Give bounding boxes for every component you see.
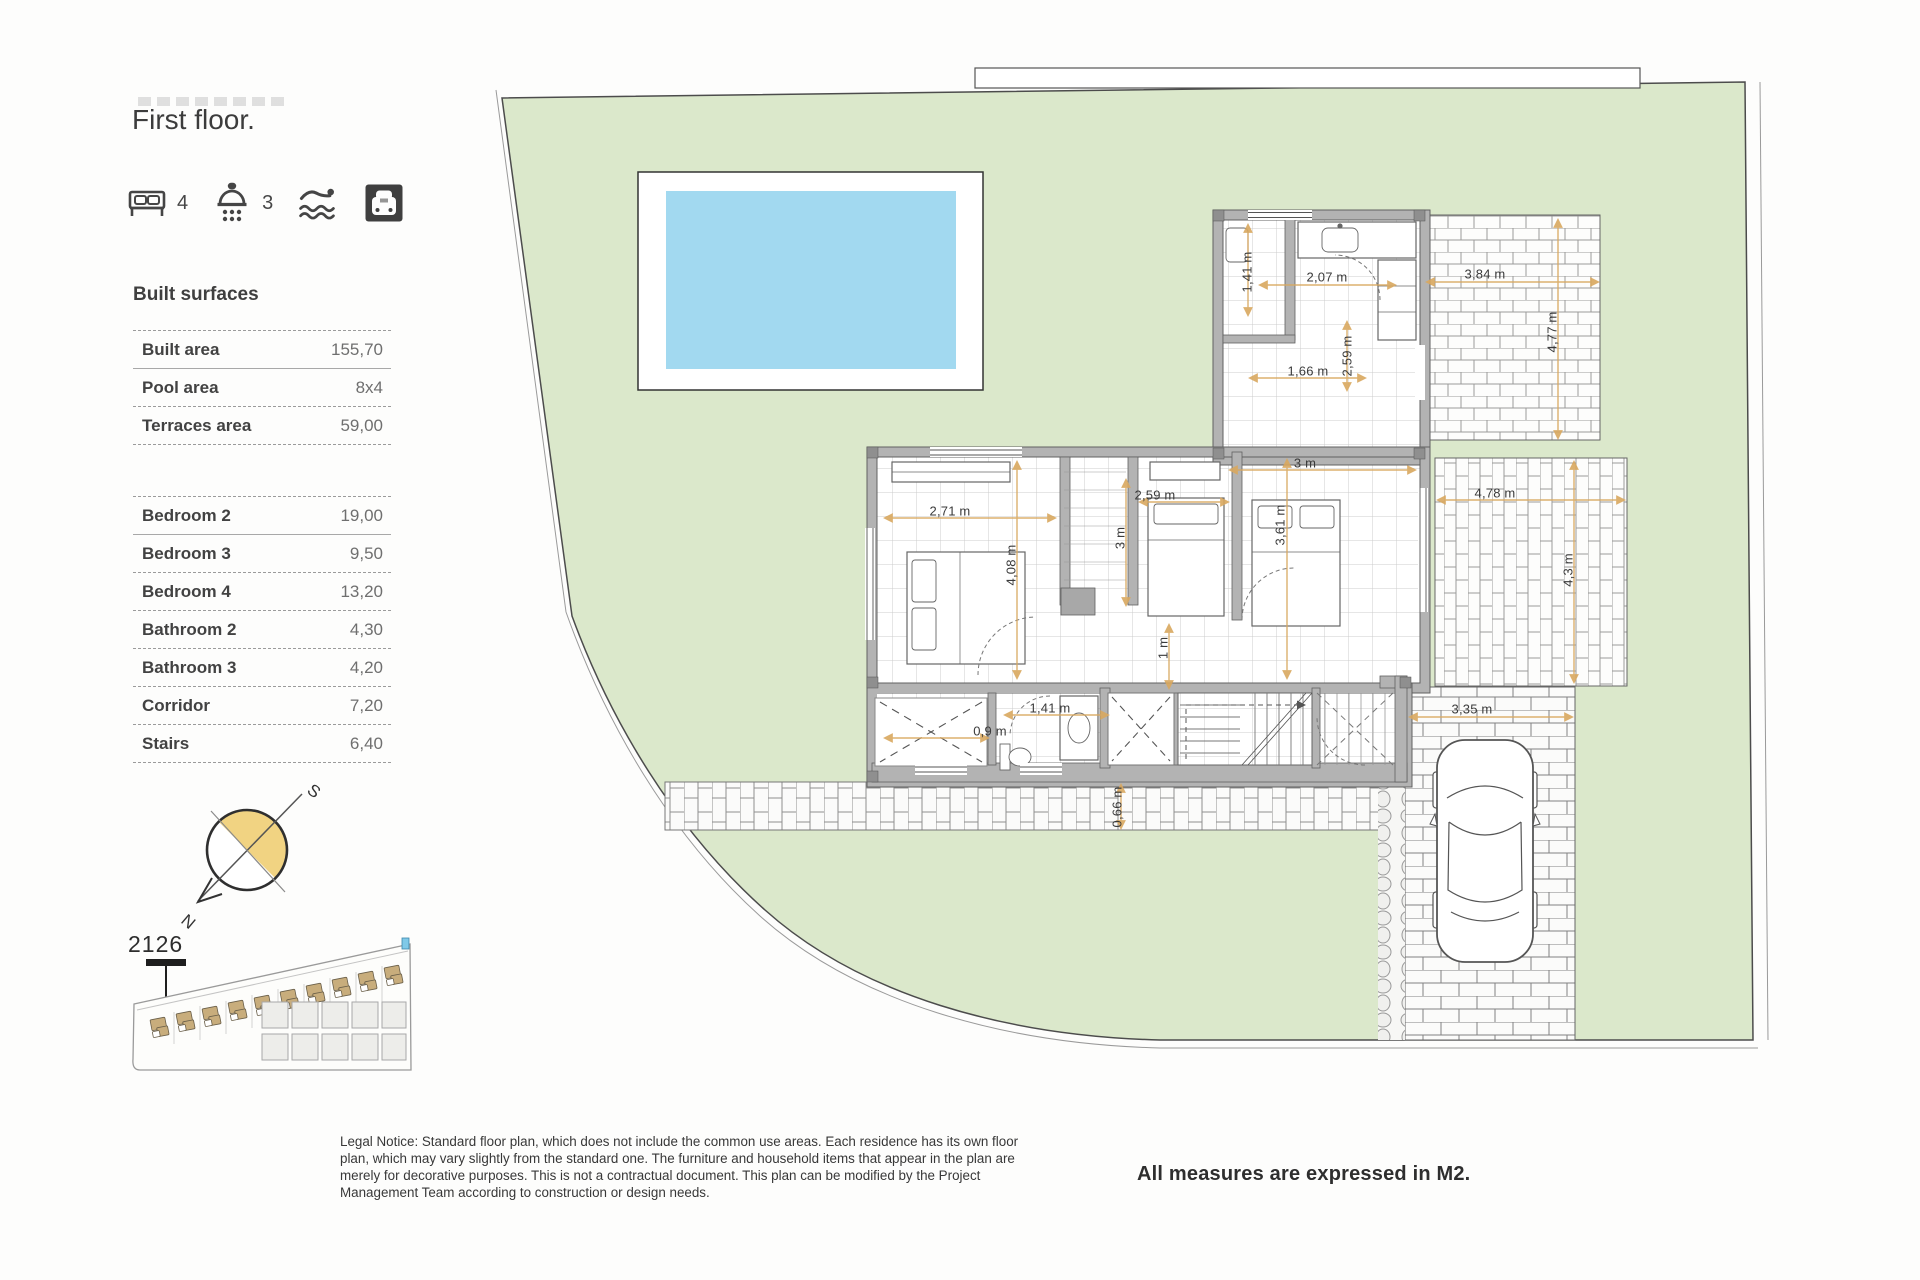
rooms-table: Bedroom 2 19,00 Bedroom 3 9,50 Bedroom 4… [133,496,391,763]
amenities-row: 4 3 [126,182,405,224]
dimension-label: 1,41 m [1030,701,1071,716]
table-row: Corridor 7,20 [133,686,391,724]
table-row: Bedroom 2 19,00 [133,496,391,534]
shower-icon [211,182,253,224]
dimension-label: 0,66 m [1110,787,1125,828]
dimension-label: 0,9 m [973,724,1007,739]
dimension-label: 2,59 m [1340,336,1355,377]
built-surfaces-heading: Built surfaces [133,284,259,306]
dimension-label: 2,07 m [1307,270,1348,285]
dimension-label: 1,66 m [1288,364,1329,379]
bathrooms-count: 3 [262,192,273,215]
site-plan: 2126 [112,928,427,1098]
row-value: 19,00 [340,506,383,526]
table-row: Bedroom 4 13,20 [133,572,391,610]
row-value: 6,40 [350,734,383,754]
floor-plan: 1,41 m 2,07 m 1,66 m 2,59 m 3,84 m 4,77 … [460,60,1780,1080]
table-row: Built area 155,70 [133,330,391,368]
pebble-strip [1378,785,1405,1040]
dimension-label: 4,08 m [1004,545,1019,586]
row-label: Stairs [142,734,189,754]
dimension-label: 4,3 m [1561,553,1576,587]
row-label: Bathroom 3 [142,658,236,678]
dimension-label: 4,77 m [1545,312,1560,353]
row-value: 59,00 [340,416,383,436]
row-label: Corridor [142,696,210,716]
floor-plan-drawing [460,60,1780,1080]
row-label: Built area [142,340,219,360]
table-row: Bedroom 3 9,50 [133,534,391,572]
neighbor-structure [975,68,1640,88]
page-title: First floor. [132,104,255,136]
row-value: 8x4 [356,378,383,398]
bedrooms-count: 4 [177,192,188,215]
dimension-label: 4,78 m [1475,486,1516,501]
table-row: Bathroom 3 4,20 [133,648,391,686]
dimension-label: 1 m [1156,637,1171,659]
garage-icon [363,182,405,224]
terrace-top [1420,215,1600,440]
row-value: 9,50 [350,544,383,564]
dimension-label: 3 m [1294,456,1316,471]
row-value: 4,20 [350,658,383,678]
row-value: 155,70 [331,340,383,360]
row-label: Bedroom 4 [142,582,231,602]
dimension-label: 3,61 m [1273,505,1288,546]
dimension-label: 1,41 m [1240,252,1255,293]
row-label: Pool area [142,378,219,398]
compass-rose: S N [172,770,332,935]
unit-number-label: 2126 [128,931,183,957]
row-value: 4,30 [350,620,383,640]
row-value: 7,20 [350,696,383,716]
bed-icon [126,182,168,224]
measures-note: All measures are expressed in M2. [1137,1163,1470,1186]
table-row: Pool area 8x4 [133,368,391,406]
brochure-page: First floor. 4 3 [0,0,1920,1280]
dimension-label: 3,35 m [1452,702,1493,717]
table-row: Stairs 6,40 [133,724,391,763]
car-top-view [1430,740,1540,962]
dimension-label: 3 m [1113,527,1128,549]
row-label: Bedroom 3 [142,544,231,564]
table-row: Terraces area 59,00 [133,406,391,445]
dimension-label: 2,59 m [1135,488,1176,503]
walkway [665,782,1405,830]
row-label: Bathroom 2 [142,620,236,640]
dimension-label: 2,71 m [930,504,971,519]
dimension-label: 3,84 m [1465,267,1506,282]
built-surfaces-table: Built area 155,70 Pool area 8x4 Terraces… [133,330,391,445]
site-pool-marker [402,938,409,949]
compass-south-label: S [304,780,325,802]
pool-water [666,191,956,369]
row-value: 13,20 [340,582,383,602]
row-label: Bedroom 2 [142,506,231,526]
table-row: Bathroom 2 4,30 [133,610,391,648]
row-label: Terraces area [142,416,251,436]
legal-notice: Legal Notice: Standard floor plan, which… [340,1133,1046,1201]
terrace-right [1435,458,1627,686]
pool-icon [296,182,338,224]
